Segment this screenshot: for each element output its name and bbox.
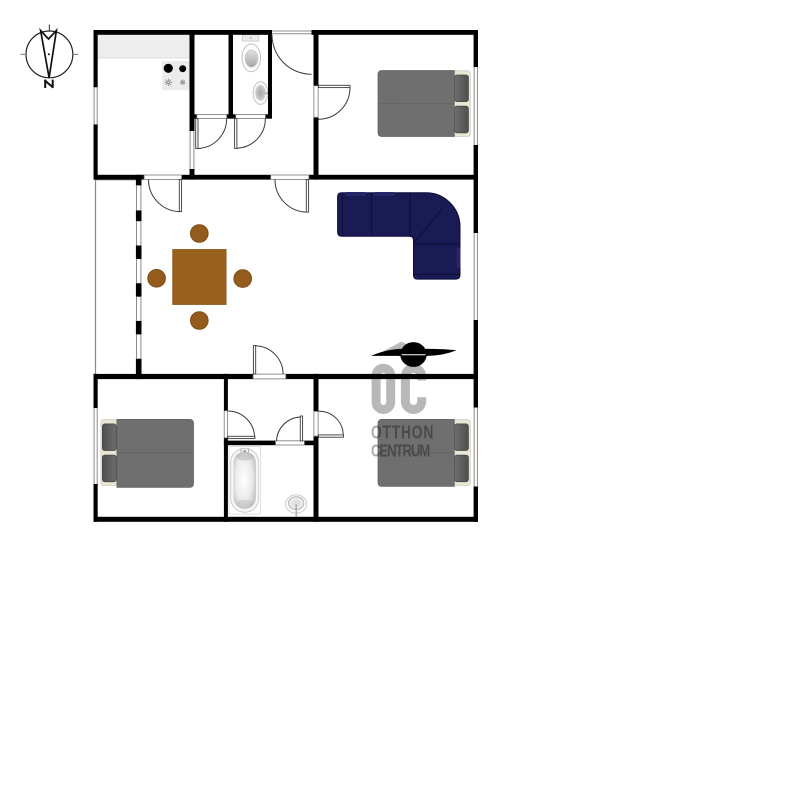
svg-text:CENTRUM: CENTRUM	[371, 442, 430, 461]
svg-text:OTTHON: OTTHON	[371, 423, 433, 443]
